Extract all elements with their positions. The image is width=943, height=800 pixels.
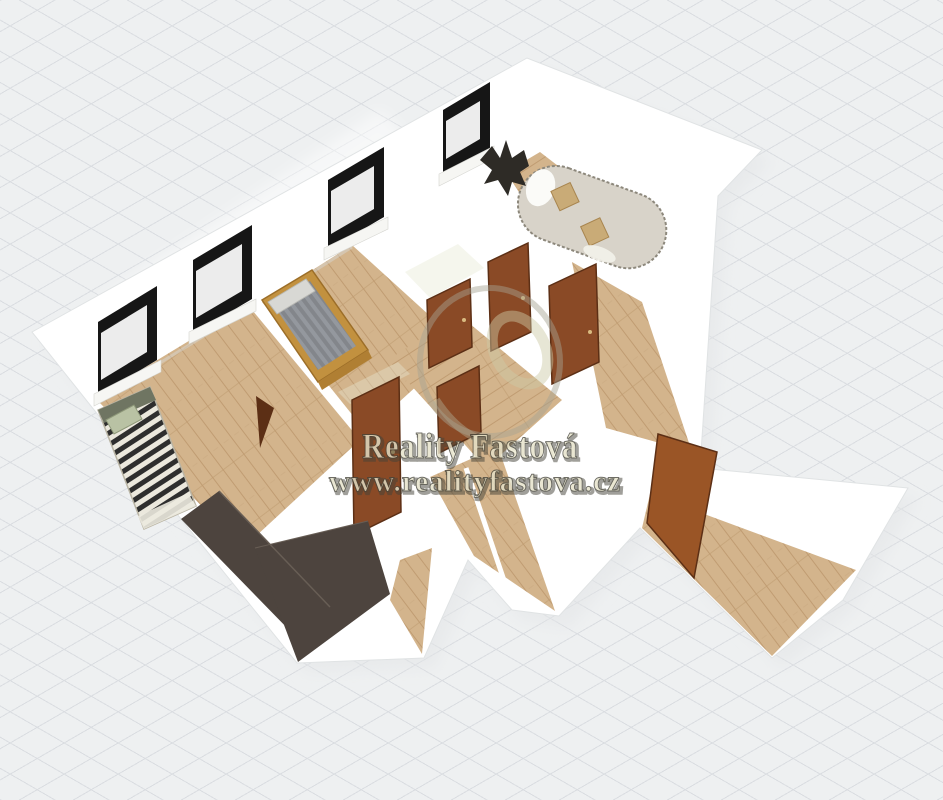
floor-plan-render: Reality Fastová Reality Fastová www.real… <box>0 0 943 800</box>
watermark-url: www.realityfastova.cz <box>329 465 621 498</box>
door-knob <box>462 318 466 322</box>
floor-plan-page: { "watermark": { "brand": "Reality Fasto… <box>0 0 943 800</box>
watermark-brand: Reality Fastová <box>362 426 578 466</box>
door <box>549 264 599 384</box>
door-knob <box>588 330 592 334</box>
